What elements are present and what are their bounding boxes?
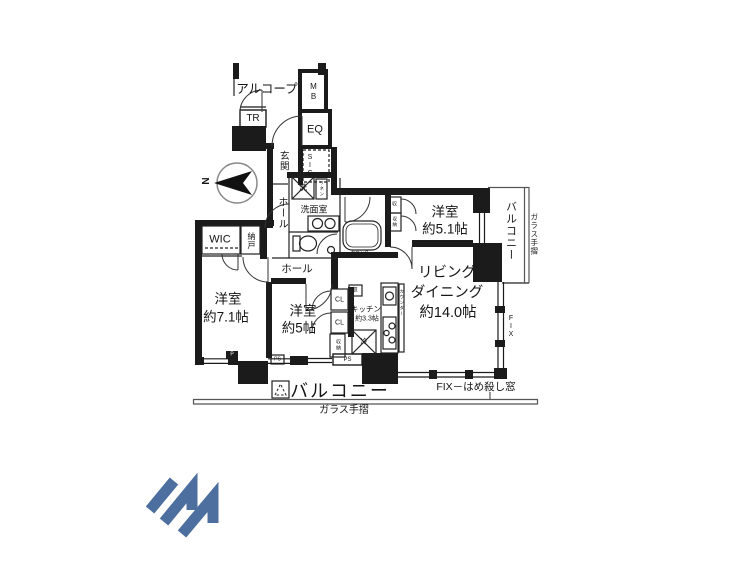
- toho-house-logo-icon: [146, 450, 224, 538]
- room-label-washroom: 洗面室: [300, 206, 327, 215]
- room-label-wic: WIC: [209, 235, 230, 246]
- closet-label-a: CL: [335, 296, 344, 303]
- ps-label-right: PS: [343, 357, 351, 363]
- room-label-living-1: リビング: [418, 266, 476, 281]
- compass-north-label: N: [202, 177, 212, 184]
- glass-rail-label-side: ガラス手摺: [530, 213, 538, 256]
- fixture-label-fridge: 冷: [361, 339, 368, 346]
- fixture-label-washer: 洗: [299, 184, 307, 192]
- room-label-kitchen-size: 約3.3帖: [355, 316, 379, 323]
- room-label-entrance: 玄関: [278, 151, 288, 172]
- fix-window-label: FIX－はめ殺し窓: [436, 382, 515, 393]
- glass-rail-label-main: ガラス手摺: [319, 406, 369, 416]
- storage-label-room5: 収納: [335, 339, 340, 351]
- room-label-trunk: TR: [246, 114, 259, 124]
- room-label-hall-lower: ホール: [281, 264, 313, 275]
- room-label-bedroom71-name: 洋室: [215, 292, 242, 306]
- toilet: [293, 236, 335, 254]
- toho-house-logo: TOHO HOUSE: [0, 448, 750, 548]
- fix-label-side: FIX: [508, 315, 515, 339]
- room-label-meter-box: MB: [309, 82, 317, 102]
- room-label-bedroom5-name: 洋室: [290, 304, 317, 318]
- kitchen-counter: [383, 287, 396, 349]
- storage-label-kitchen: 収: [352, 288, 358, 294]
- room-label-bedroom51-name: 洋室: [432, 205, 459, 219]
- closet-label-b: CL: [335, 319, 344, 326]
- room-label-living-2: ダイニング: [411, 286, 484, 301]
- compass-icon: [214, 163, 257, 203]
- fixture-label-linen: リネン: [319, 181, 324, 198]
- balcony-label-main: バルコニー: [290, 382, 390, 400]
- room-label-kitchen-name: キッチン: [351, 305, 381, 313]
- p-label: P: [230, 353, 233, 358]
- room-label-nando: 納戸: [247, 232, 255, 250]
- balcony-label-side: バルコニー: [505, 201, 516, 261]
- room-label-eq: EQ: [307, 125, 323, 136]
- room-label-alcove: アルコープ: [236, 83, 297, 96]
- room-label-living-3: 約14.0帖: [419, 306, 476, 321]
- storage-label-51b: 収納: [392, 217, 397, 228]
- room-label-hall-upper: ホール: [276, 197, 286, 230]
- room-label-bedroom71-size: 約7.1帖: [203, 310, 249, 324]
- floorplan-page: N アルコープ TR MB EQ SIC 玄関 洗 リネン 洗面室 ホール ホー…: [0, 0, 750, 563]
- room-label-bedroom5-size: 約5帖: [282, 321, 317, 335]
- evacuation-hatch-icon: [272, 381, 289, 398]
- counter-label-kitchen: カウンター: [399, 289, 404, 317]
- ps-label-left: PS: [274, 357, 281, 362]
- room-label-bedroom51-size: 約5.1帖: [422, 222, 468, 236]
- room-label-sic: SIC: [307, 154, 314, 178]
- storage-label-51a: 収: [392, 203, 397, 208]
- counter-label-bath: カウンター: [351, 251, 374, 256]
